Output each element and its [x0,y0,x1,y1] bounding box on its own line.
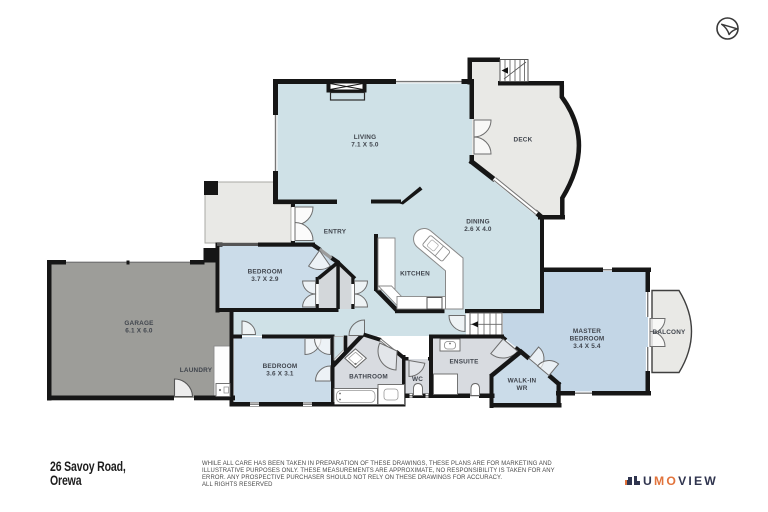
svg-text:3.6 X 3.1: 3.6 X 3.1 [266,371,294,378]
svg-text:BEDROOM: BEDROOM [263,363,298,370]
svg-text:ENTRY: ENTRY [324,229,347,236]
svg-text:DECK: DECK [514,137,533,144]
svg-text:DINING: DINING [466,219,490,226]
svg-text:LIVING: LIVING [354,134,377,141]
svg-text:3.7 X 2.9: 3.7 X 2.9 [251,276,279,283]
svg-text:2.6 X 4.0: 2.6 X 4.0 [464,226,492,233]
svg-text:BALCONY: BALCONY [653,329,687,336]
svg-text:WC: WC [412,376,423,383]
svg-text:3.4 X 5.4: 3.4 X 5.4 [573,343,601,350]
svg-text:LAUNDRY: LAUNDRY [180,367,213,374]
svg-text:UMOVIEW: UMOVIEW [643,474,718,488]
svg-text:ENSUITE: ENSUITE [449,359,479,366]
svg-text:MASTER: MASTER [573,328,601,335]
svg-text:KITCHEN: KITCHEN [400,271,430,278]
svg-text:WR: WR [516,385,527,392]
svg-text:BEDROOM: BEDROOM [570,336,605,343]
svg-text:7.1 X 5.0: 7.1 X 5.0 [351,142,379,149]
svg-text:6.1 X 6.0: 6.1 X 6.0 [125,328,153,335]
svg-text:BATHROOM: BATHROOM [349,374,388,381]
svg-text:WALK-IN: WALK-IN [508,378,537,385]
svg-text:BEDROOM: BEDROOM [248,269,283,276]
svg-text:GARAGE: GARAGE [124,320,154,327]
